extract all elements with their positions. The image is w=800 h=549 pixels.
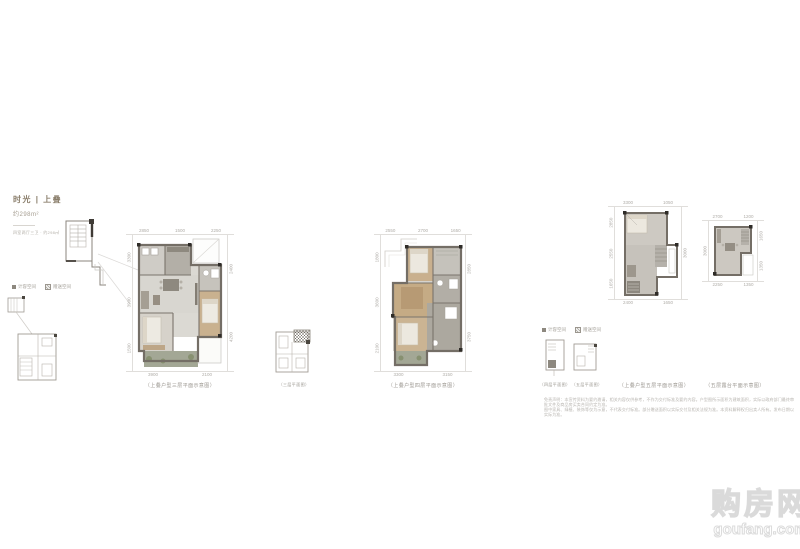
toilet-icon [203,270,209,276]
legend-swatch-solid [12,285,16,289]
desk [627,265,636,277]
dimension-col-right: 3000 [681,207,688,299]
area-label: 约298m² [13,209,62,218]
legend-item: 计容空间 [542,327,566,333]
watermark-cn: 购房网 [711,490,800,520]
floorplan-3b-drawing [709,221,757,281]
washer-icon [151,248,158,255]
inset-b-caption: （三层平面图） [270,382,318,388]
column-marker [675,243,679,247]
column-marker [655,292,659,296]
legend-label: 计容空间 [548,327,566,333]
plant-icon [399,356,404,361]
bed-pillows [627,215,647,219]
legend-swatch-hatch [45,284,51,290]
floorplan-1-drawing [133,235,227,371]
column-marker [306,340,310,344]
legend-right: 计容空间 赠送空间 [542,327,601,333]
column-marker [188,243,192,247]
legend-left: 计容空间 赠送空间 [12,284,71,290]
kitchen-counter [167,247,189,252]
disclaimer: 免责声明：本宣传资料为要约邀请，相关内容仅供参考，不作为交付标准及要约内容。户型… [544,397,796,417]
column-marker [137,243,141,247]
bed-pillows [202,299,218,304]
column-marker [22,296,25,299]
column-marker [749,225,753,229]
floor-plan-sheet: 时光 | 上叠 约298m² 四室两厅三卫 · 约298㎡ 计容空间 赠送空间 [0,0,800,549]
column-marker [665,211,669,215]
stairs-icon [741,229,749,245]
coffee-table [153,295,160,305]
dimension-col-left: 3000 [702,221,709,281]
rug [401,287,423,309]
legend-swatch-hatch [575,327,581,333]
column-marker [459,348,463,352]
column-marker [89,219,94,224]
goufang-watermark: 购房网 goufang.com [711,490,800,537]
dimension-col-right: 24004200 [227,235,234,371]
column-marker [713,272,717,276]
plan3b-caption: （五层露台平面示意图） [700,382,770,389]
floorplan-3a-drawing [615,207,681,299]
legend-item: 计容空间 [12,284,36,290]
dining-table [163,279,179,291]
legend-item: 赠送空间 [45,284,71,290]
watermark-en: goufang.com [711,522,800,537]
legend-label: 赠送空间 [583,327,601,333]
plant-icon [188,354,194,360]
legend-label: 赠送空间 [53,284,71,290]
dimension-col-right: 16501350 [757,221,764,281]
rug [143,345,165,350]
column-marker [623,211,627,215]
stairs-icon [655,245,667,267]
cabinet [717,229,721,243]
bed-pillows [398,323,402,345]
keyplan-inset-c [544,338,566,378]
shower-icon [449,279,458,289]
plan3a-caption: （上叠户型五层平面示意图） [616,382,692,389]
dimension-row-bottom: 24001650 [608,300,688,306]
dimension-col-left: 330039001500 [126,235,133,371]
legend-label: 计容空间 [18,284,36,290]
disclaimer-line: 图中家具、绿植、装饰等仅为示意，不代表交付标准。部分赠送面积以实际交付及相关法规… [544,407,796,417]
column-marker [405,245,409,249]
dimension-col-left: 285025501650 [608,207,615,299]
floorplan-3a: 33001050 285025501650 [608,200,688,306]
dimension-col-right: 28503750 [465,235,472,371]
floorplan-2: 255027001650 180036002100 [374,228,472,389]
column-marker [391,314,395,318]
toilet-icon [437,280,443,286]
shower-icon [445,307,457,319]
tv-cabinet [195,283,198,305]
bed-pillows [410,249,428,254]
legend-item: 赠送空间 [575,327,601,333]
sink-icon [211,269,219,278]
title-divider [13,225,35,226]
keyplan-inset-d [572,342,600,376]
column-marker [218,263,222,267]
table [725,243,735,251]
inset-c-caption: （四层平面图） [538,382,572,388]
highlight-solid [548,360,556,368]
washer-icon [142,248,149,255]
column-marker [459,245,463,249]
bed-pillows [143,317,147,343]
floorplan-1: 285015002250 330039001500 [126,228,234,389]
column-marker [54,334,57,337]
legend-swatch-solid [542,328,546,332]
title-note: 四室两厅三卫 · 约298㎡ [13,230,62,236]
sofa [141,291,149,309]
disclaimer-line: 免责声明：本宣传资料为要约邀请，相关内容仅供参考，不作为交付标准及要约内容。户型… [544,397,796,407]
floorplan-2-drawing [381,235,465,371]
keyplan-inset-b-drawing [270,328,318,376]
page-title: 时光 | 上叠 [13,194,62,205]
title-block: 时光 | 上叠 约298m² 四室两厅三卫 · 约298㎡ [13,194,62,236]
dimension-row-bottom: 22501350 [702,282,764,288]
dimension-row-bottom: 39002100 [126,372,234,378]
plan2-caption: （上叠户型四层平面示意图） [374,382,472,389]
keyplan-inset-b: （三层平面图） [270,328,318,388]
plant-icon [417,356,422,361]
open-terrace [198,337,221,363]
column-marker [594,344,597,347]
dimension-col-left: 180036002100 [374,235,381,371]
floorplan-3b: 27001200 3000 [702,214,764,288]
inset-d-caption: （五层平面图） [570,382,604,388]
plan1-caption: （上叠户型三层平面示意图） [126,382,234,389]
keyplan-inset-a [6,294,62,382]
column-marker [218,334,222,338]
dimension-row-bottom: 33003150 [374,372,472,378]
